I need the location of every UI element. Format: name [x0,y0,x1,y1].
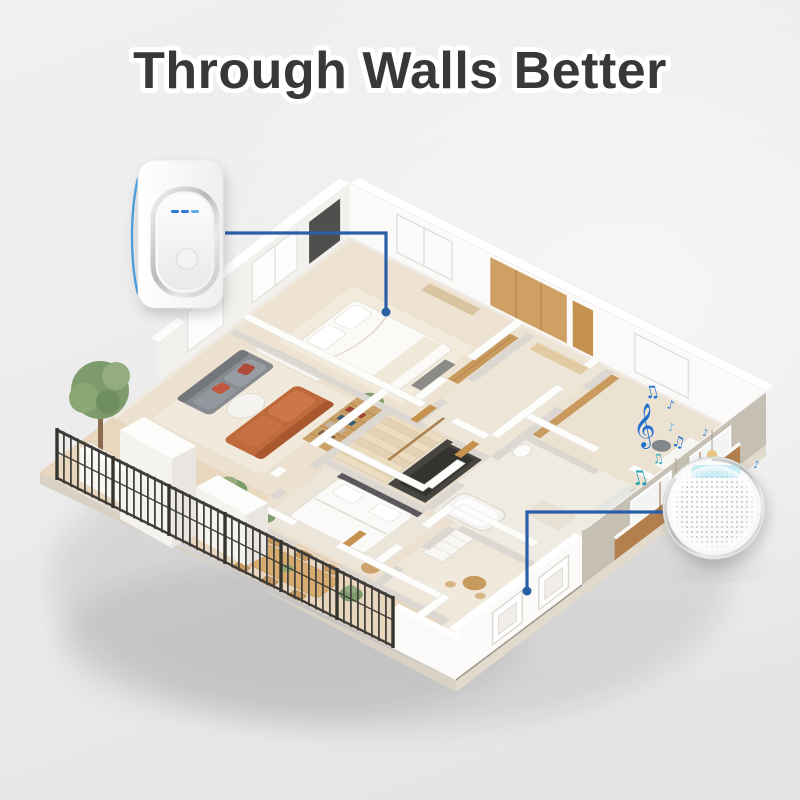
transmitter-button[interactable] [158,194,212,290]
scene-canvas: Through Walls Better [0,0,800,800]
button-indent [177,249,198,270]
signal-endpoint-dot [382,308,391,317]
grille-fade [672,466,757,551]
treble-clef-icon: 𝄞 [633,403,655,449]
page-title: Through Walls Better [133,42,667,100]
doorbell-transmitter [132,160,223,308]
music-note-icon: ♪ [753,460,759,471]
blue-accent-edge [132,178,138,294]
signal-endpoint-dot [523,587,532,596]
product-scene: Through Walls Better [0,0,800,800]
music-note-icon: ♪ [702,428,708,439]
led-indicator [171,210,199,213]
